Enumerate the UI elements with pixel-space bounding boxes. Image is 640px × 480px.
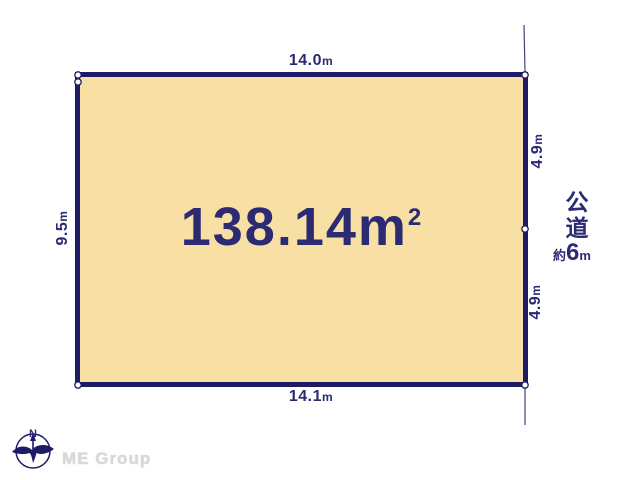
area-exponent: 2 [408, 204, 421, 231]
dimension-unit: m [529, 285, 543, 296]
lot-diagram-canvas: N 138.14m2 14.0m 14.1m 9.5m 4.9m 4.9m 公道… [0, 0, 640, 480]
road-width-unit: m [579, 248, 591, 263]
area-value: 138.14m [181, 197, 408, 257]
road-width-label: 約6m [553, 239, 591, 267]
dimension-label-left: 9.5m [54, 211, 72, 246]
dimension-value: 14.0 [289, 52, 322, 69]
dimension-unit: m [56, 211, 70, 222]
road-width-prefix: 約 [553, 248, 566, 263]
dimension-unit: m [531, 134, 545, 145]
compass-arrowhead-icon [30, 433, 36, 441]
compass-circle-icon [16, 434, 50, 468]
road-name-label: 公道 [558, 190, 592, 242]
dimension-value: 4.9 [527, 296, 544, 320]
dimension-value: 9.5 [54, 222, 71, 246]
dimension-unit: m [322, 390, 333, 404]
dimension-value: 14.1 [289, 388, 322, 405]
area-label: 138.14m2 [181, 196, 422, 258]
north-label: N [29, 428, 37, 440]
dimension-value: 4.9 [529, 145, 546, 169]
me-group-logo-text: ME Group [62, 449, 151, 469]
dimension-label-top: 14.0m [289, 52, 333, 70]
dimension-label-right-lower: 4.9m [527, 285, 545, 320]
dimension-label-right-upper: 4.9m [529, 134, 547, 169]
dimension-unit: m [322, 54, 333, 68]
boundary-extension-line-top [524, 25, 525, 72]
compass-bird-icon [12, 445, 54, 463]
road-width-value: 6 [566, 239, 579, 266]
dimension-label-bottom: 14.1m [289, 388, 333, 406]
compass: N [12, 428, 54, 468]
